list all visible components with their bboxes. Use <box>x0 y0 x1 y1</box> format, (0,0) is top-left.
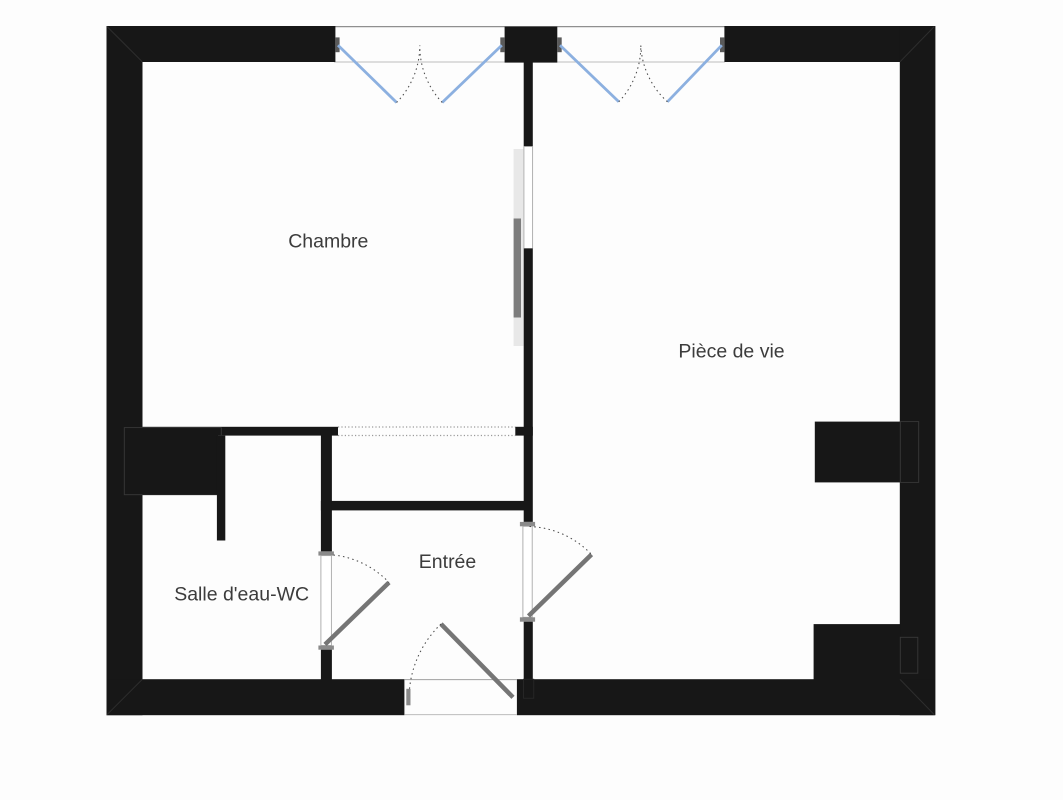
svg-text:Pièce de vie: Pièce de vie <box>678 341 784 363</box>
svg-text:Chambre: Chambre <box>288 231 368 253</box>
svg-text:Entrée: Entrée <box>419 551 476 573</box>
svg-text:Salle d'eau-WC: Salle d'eau-WC <box>174 584 309 606</box>
